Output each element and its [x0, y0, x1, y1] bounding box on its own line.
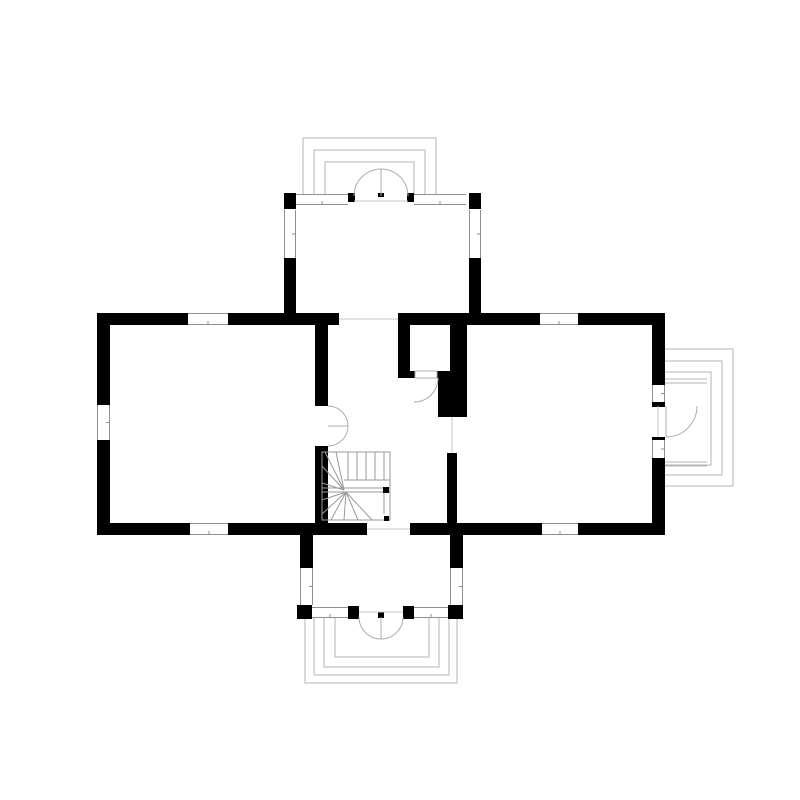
wall-segment — [228, 313, 339, 325]
wall-segment — [438, 378, 467, 417]
wall-segment — [450, 325, 467, 378]
wall-segment — [284, 193, 296, 209]
wall-segment — [438, 371, 452, 378]
wall-segment — [410, 523, 542, 535]
wall-segment — [450, 535, 463, 568]
wall-segment — [447, 453, 457, 523]
floor-plan-page — [0, 0, 800, 800]
wall-segment — [348, 606, 359, 619]
wall-segment — [97, 523, 190, 535]
wall-segment — [469, 193, 481, 209]
wall-segment — [398, 371, 415, 378]
wall-segment — [97, 313, 110, 405]
wall-segment — [652, 458, 665, 535]
wall-segment — [578, 523, 665, 535]
floor-plan-svg — [0, 0, 800, 800]
wall-segment — [97, 313, 188, 325]
stair-newel-marker — [384, 516, 389, 521]
wall-segment — [228, 523, 367, 535]
wall-segment — [652, 313, 665, 385]
wall-segment — [398, 325, 410, 378]
wall-segment — [300, 535, 313, 568]
wall-segment — [469, 258, 481, 314]
plan-background — [0, 0, 800, 800]
door-leaf — [415, 371, 437, 378]
wall-segment — [398, 313, 540, 325]
wall-segment — [297, 605, 312, 619]
wall-segment — [448, 605, 463, 619]
wall-segment — [97, 440, 110, 535]
stair-newel-marker — [383, 487, 389, 493]
wall-segment — [315, 325, 328, 406]
wall-segment — [284, 258, 296, 314]
wall-segment — [578, 313, 665, 325]
wall-segment — [403, 606, 414, 619]
